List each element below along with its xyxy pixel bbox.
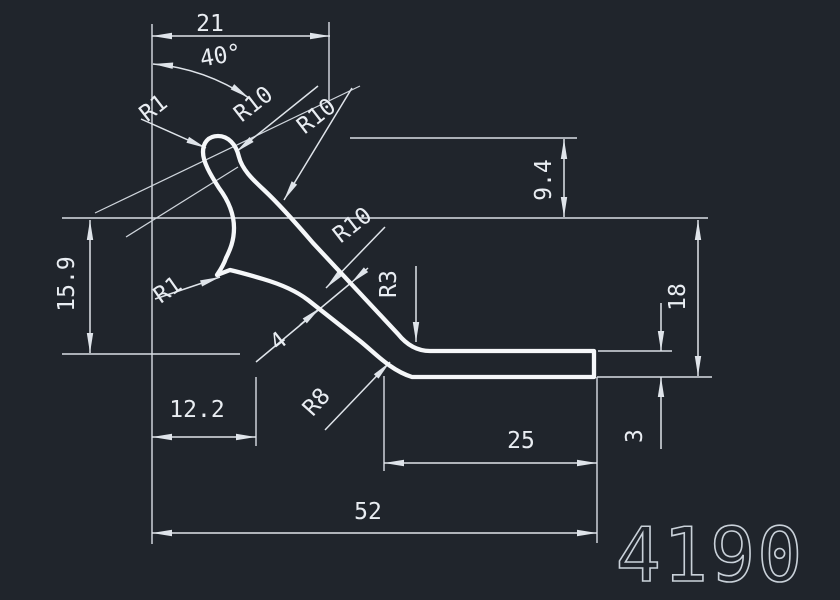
dim-total-width-label: 52 — [354, 499, 382, 525]
dim-right-height-label: 18 — [665, 283, 691, 311]
dimarrow-web-lower — [300, 308, 320, 325]
dim-tip-radius-label: R1 — [135, 90, 173, 128]
dim-heel-radius-label: R8 — [298, 383, 336, 421]
cad-viewport: 21 40° R1 R10 R10 R10 R3 4 R8 R1 9.4 15.… — [0, 0, 840, 600]
dim-web-radius-label: R10 — [328, 202, 377, 248]
dim-tip-drop-label: 9.4 — [531, 159, 557, 201]
dimension-labels: 21 40° R1 R10 R10 R10 R3 4 R8 R1 9.4 15.… — [54, 11, 691, 525]
axis-centerline-2 — [126, 167, 238, 237]
dim-flange-thickness-label: 3 — [622, 429, 648, 443]
cad-drawing-4190: 21 40° R1 R10 R10 R10 R3 4 R8 R1 9.4 15.… — [0, 0, 840, 600]
dim-notch-radius-label: R1 — [149, 272, 187, 309]
dim-top-width-label: 21 — [196, 11, 224, 37]
dim-knob-radius-label: R10 — [229, 81, 278, 127]
dim-notch-offset-label: 12.2 — [169, 397, 224, 423]
dim-angle-label: 40° — [198, 40, 243, 73]
part-number-label: 4190 — [616, 511, 805, 599]
dim-left-height-label: 15.9 — [54, 256, 80, 311]
leader-heel-radius — [325, 362, 390, 430]
dimarrow-web-upper — [351, 268, 368, 283]
dim-web-corner-radius-label: R3 — [376, 270, 402, 298]
dim-flange-length-label: 25 — [507, 428, 535, 454]
